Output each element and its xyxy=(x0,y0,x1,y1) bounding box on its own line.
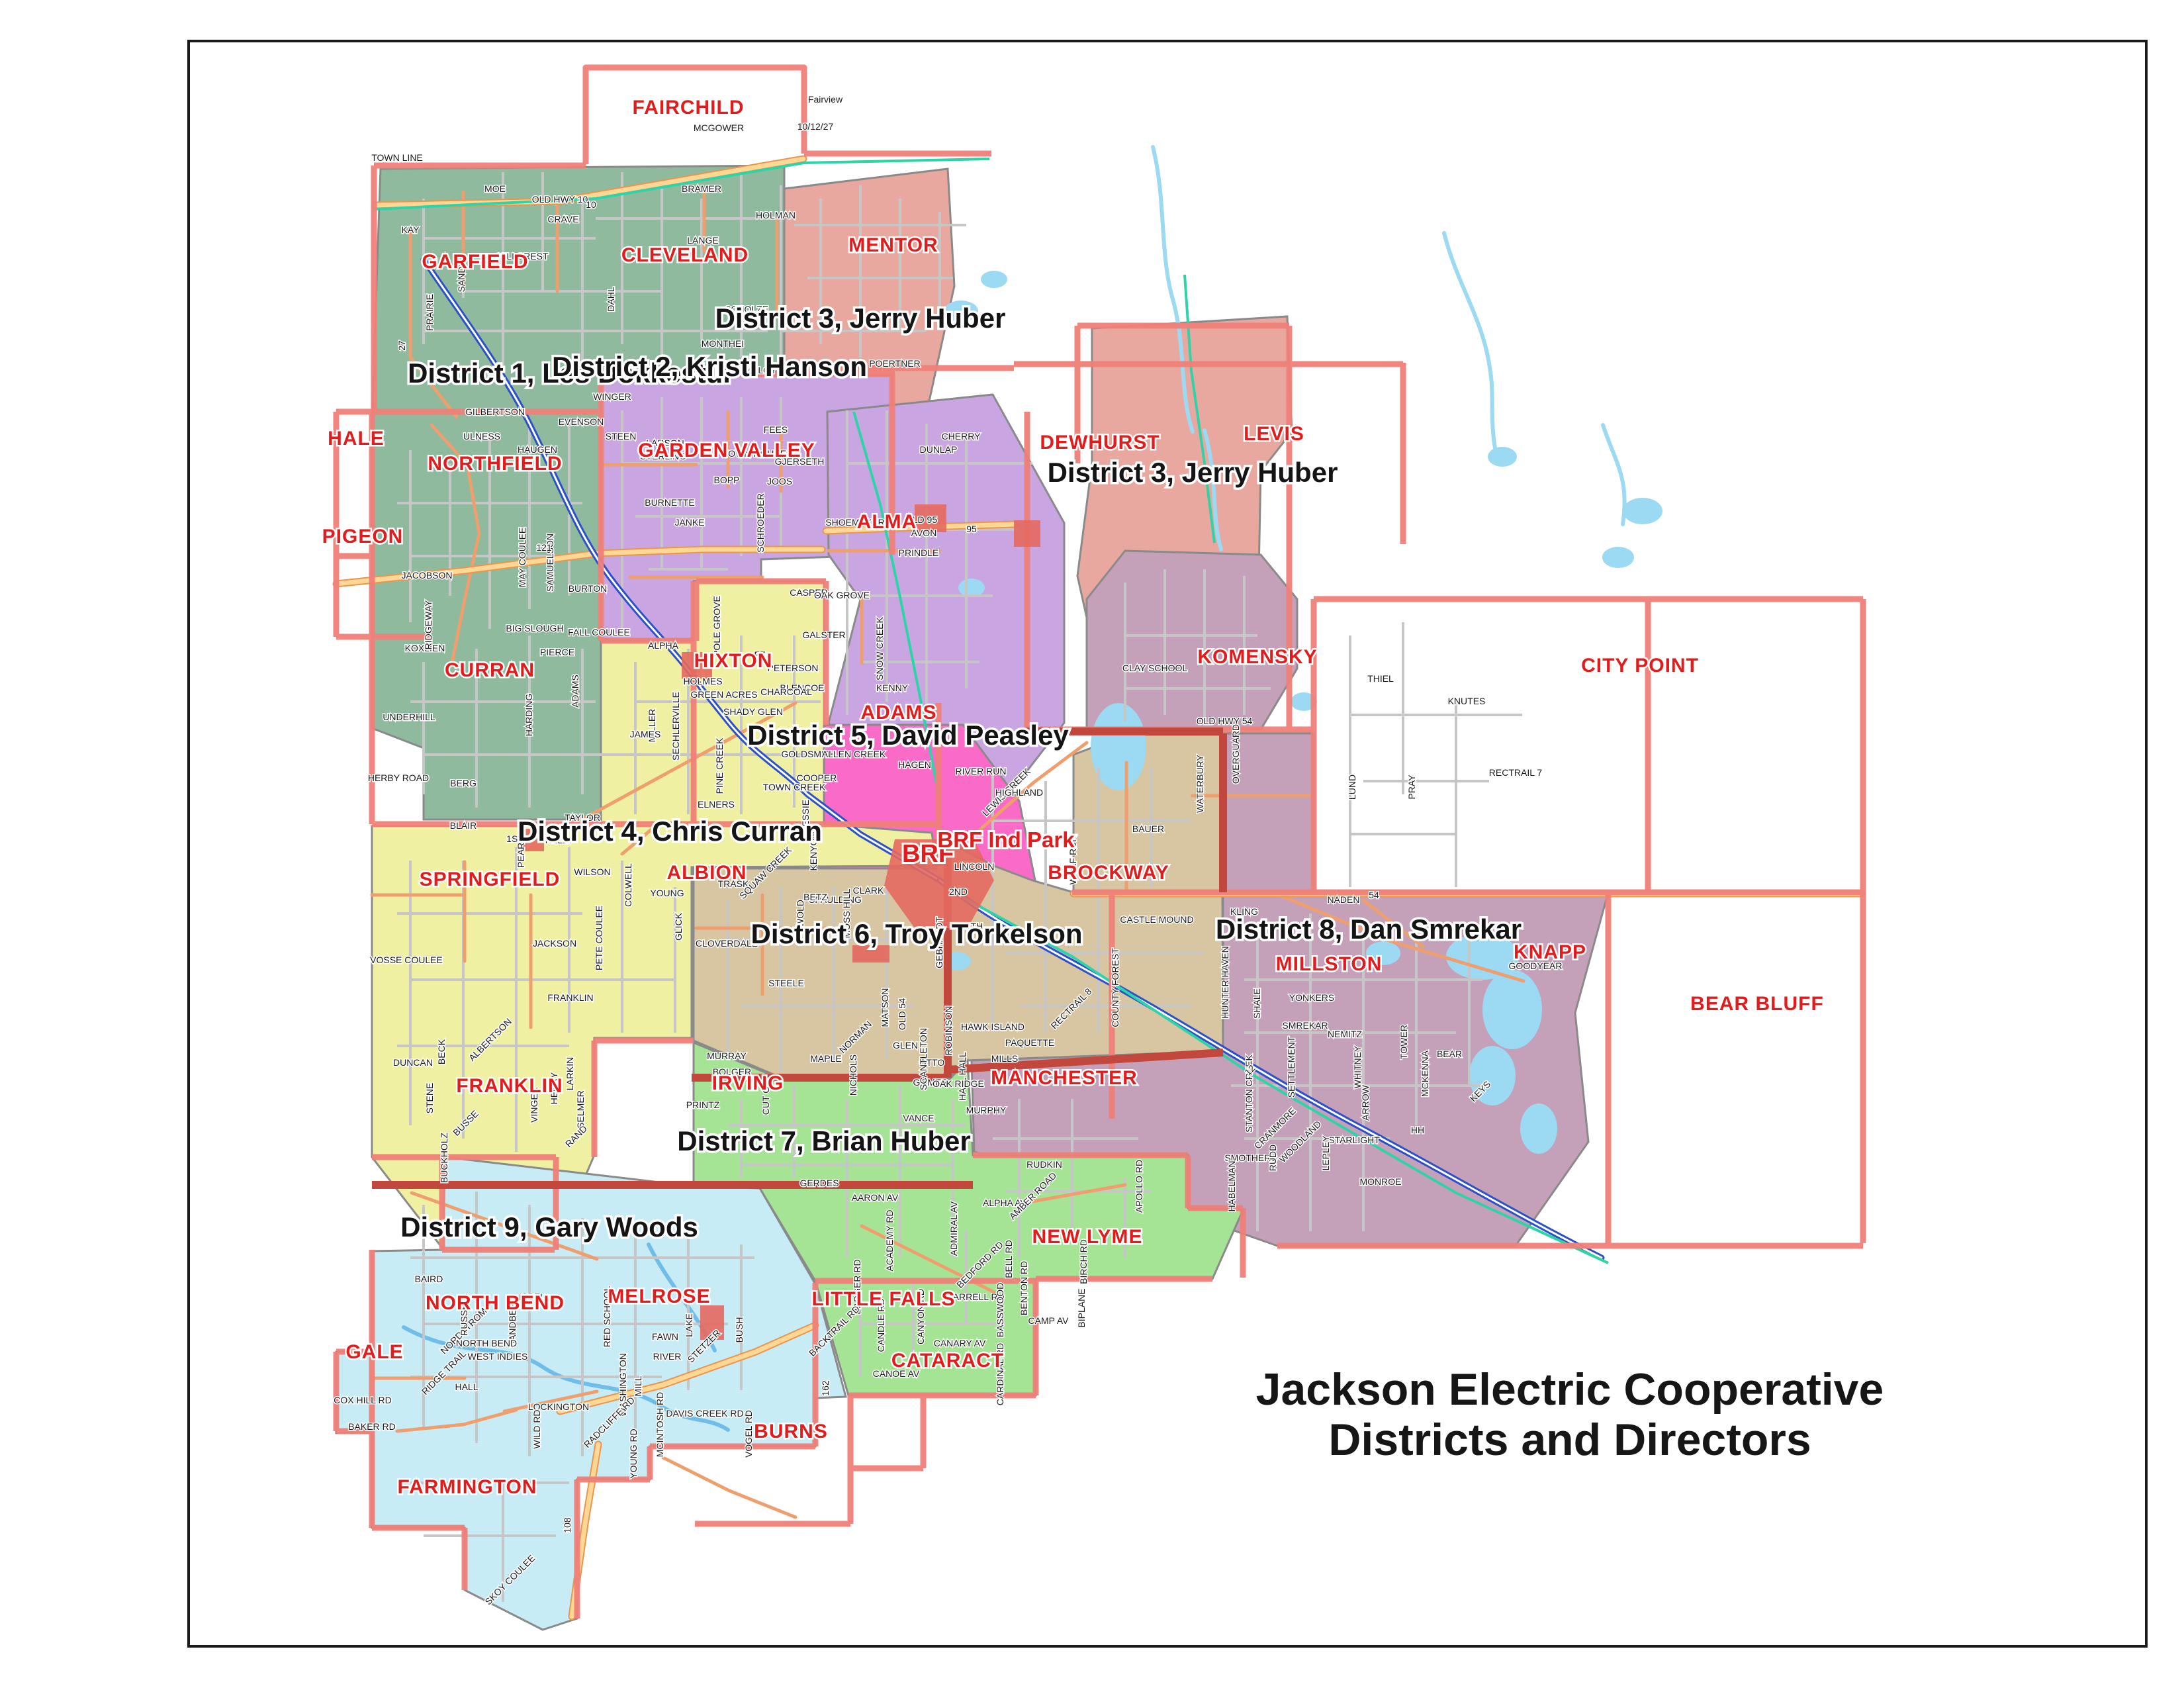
road-label: BURTON xyxy=(569,583,608,594)
township-label-pigeon: PIGEON xyxy=(322,526,404,547)
road-label: CAMP AV xyxy=(1028,1315,1069,1326)
road-label: 2ND xyxy=(949,886,968,897)
road-label: TOWER xyxy=(1398,1025,1409,1059)
road-label: RIVER RUN xyxy=(955,766,1006,776)
road-label: ARROW xyxy=(1360,1084,1371,1120)
district-label-3a: District 3, Jerry Huber xyxy=(715,303,1006,334)
township-label-manchester: MANCHESTER xyxy=(991,1067,1138,1089)
road-label: OLD 54 xyxy=(897,998,907,1030)
road-label: GREEN ACRES xyxy=(690,689,757,700)
road-label: AARON AV xyxy=(852,1192,899,1203)
district-label-4: District 4, Chris Curran xyxy=(518,816,822,847)
road-label: PRINDLE xyxy=(899,547,939,558)
township-label-albion: ALBION xyxy=(667,862,747,884)
township-label-brockway: BROCKWAY xyxy=(1048,862,1169,884)
road-label: SECHLERVILLE xyxy=(670,692,681,761)
road-label: SETTLEMENT xyxy=(1286,1036,1297,1098)
road-label: BERG xyxy=(450,778,477,788)
township-label-bear-bluff: BEAR BLUFF xyxy=(1690,993,1824,1015)
road-label: ADAMS xyxy=(570,675,580,708)
map-title-line1: Jackson Electric Cooperative xyxy=(1256,1364,1884,1415)
road-label: WATERBURY xyxy=(1195,755,1205,813)
road-label: CASTLE MOUND xyxy=(1120,914,1193,925)
road-label: ELNERS xyxy=(698,799,735,810)
township-label-city-point: CITY POINT xyxy=(1581,655,1699,677)
road-label: PETERSON xyxy=(767,663,818,673)
road-label: GALSTER xyxy=(802,630,845,640)
township-label-curran: CURRAN xyxy=(445,659,535,681)
road-label: 10/12/27 xyxy=(797,121,834,132)
road-label: POLE GROVE xyxy=(711,596,722,657)
road-label: BRAMER xyxy=(682,183,721,194)
road-label: BOPP xyxy=(714,475,740,485)
road-label: SMREKAR xyxy=(1282,1020,1328,1031)
road-label: RECTRAIL 7 xyxy=(1489,767,1543,778)
road-label: BUCKHOLZ xyxy=(439,1132,449,1183)
road-label: RIDGEWAY xyxy=(423,600,433,649)
road-label: YOUNG RD xyxy=(628,1429,639,1478)
road-label: BETZ xyxy=(803,892,827,902)
road-label: MONTHEI xyxy=(702,338,745,349)
road-label: HERBY ROAD xyxy=(368,773,429,783)
road-label: KAY xyxy=(402,224,420,235)
place-label-brf-ind-park: BRF Ind Park xyxy=(937,827,1075,852)
township-label-gale: GALE xyxy=(345,1341,403,1363)
road-label: NADEN xyxy=(1327,894,1359,905)
road-label: WILSON xyxy=(574,867,610,877)
road-label: TOWN LINE xyxy=(371,152,423,163)
road-label: BEAR xyxy=(1437,1049,1462,1059)
district-label-9: District 9, Gary Woods xyxy=(400,1211,698,1243)
road-label: DUNCAN xyxy=(393,1057,433,1068)
road-label: FAWN xyxy=(652,1331,678,1342)
road-label: CHARCOAL xyxy=(760,686,812,697)
township-label-irving: IRVING xyxy=(712,1072,784,1094)
township-label-alma: ALMA xyxy=(857,511,917,533)
map-title-line2: Districts and Directors xyxy=(1328,1415,1811,1465)
road-label: GILBERTSON xyxy=(465,406,525,417)
road-label: OAK GROVE xyxy=(814,590,870,600)
road-label: HOLMAN xyxy=(756,210,796,220)
road-label: VANCE xyxy=(903,1113,934,1123)
road-label: PRAIRIE xyxy=(424,294,435,331)
road-label: OVERGUARD xyxy=(1230,724,1241,784)
road-label: NICHOLS xyxy=(848,1055,858,1096)
township-label-little-falls: LITTLE FALLS xyxy=(812,1288,956,1310)
road-label: COOPER xyxy=(797,773,837,783)
road-label: DAHL xyxy=(606,287,616,312)
road-label: CRAVE xyxy=(547,214,578,224)
township-label-hixton: HIXTON xyxy=(694,650,773,672)
district-8-area-komensky xyxy=(1087,551,1297,729)
township-label-garfield: GARFIELD xyxy=(422,251,528,273)
road-label: STARLIGHT xyxy=(1328,1135,1380,1145)
road-label: SCHROEDER xyxy=(755,493,766,552)
road-label: CANARY AV xyxy=(934,1338,986,1348)
road-label: CLAY SCHOOL xyxy=(1122,663,1188,673)
road-label: BLAIR xyxy=(450,820,477,831)
road-label: LINCOLN xyxy=(954,861,995,872)
road-label: MAPLE xyxy=(810,1053,841,1064)
road-label: HAGEN xyxy=(898,759,931,770)
road-label: PETE COULEE xyxy=(594,906,604,970)
township-label-millston: MILLSTON xyxy=(1276,953,1383,975)
road-label: YONKERS xyxy=(1289,992,1334,1003)
road-label: GERDES xyxy=(799,1178,839,1188)
road-label: FEES xyxy=(764,424,788,435)
road-label: JACKSON xyxy=(533,938,576,949)
road-label: VOGEL RD xyxy=(743,1410,754,1458)
road-label: LEPLEY xyxy=(1320,1135,1331,1171)
road-label: ALPHA xyxy=(648,640,679,651)
road-label: SHALE xyxy=(1251,988,1262,1019)
road-label: RUDKIN xyxy=(1026,1159,1062,1170)
map-page: TOWN LINE OLD HWY 10 MCGOWER 10/12/27 BR… xyxy=(0,0,2184,1688)
district-label-8: District 8, Dan Smrekar xyxy=(1216,914,1522,945)
road-label: SCANTLETON xyxy=(918,1028,929,1090)
road-label: SHADY GLEN xyxy=(723,706,783,717)
road-label: LUND xyxy=(1347,774,1357,800)
road-label: POERTNER xyxy=(869,358,921,369)
township-label-hale: HALE xyxy=(328,428,385,449)
township-label-cataract: CATARACT xyxy=(891,1350,1004,1372)
road-label: MURPHY xyxy=(966,1105,1007,1115)
township-label-northfield: NORTHFIELD xyxy=(428,453,562,475)
road-label: DUNLAP xyxy=(920,444,958,455)
road-label: COUNTY FOREST xyxy=(1110,948,1120,1027)
township-label-fairchild: FAIRCHILD xyxy=(633,97,745,118)
road-label: FALL COULEE xyxy=(568,627,630,637)
route-number: 54 xyxy=(1369,890,1379,900)
road-label: HIGHLAND xyxy=(995,787,1043,798)
map-title: Jackson Electric Cooperative Districts a… xyxy=(1256,1364,1884,1465)
township-label-springfield: SPRINGFIELD xyxy=(420,868,561,890)
road-label: BELL RD xyxy=(1003,1240,1014,1278)
road-label: JOOS xyxy=(767,476,792,487)
township-label-komensky: KOMENSKY xyxy=(1197,646,1317,668)
road-label: PAQUETTE xyxy=(1005,1037,1054,1048)
township-label-cleveland: CLEVELAND xyxy=(621,244,749,266)
road-label: GLEN xyxy=(893,1040,918,1051)
road-label: NORTH BEND xyxy=(456,1338,517,1348)
township-label-melrose: MELROSE xyxy=(608,1286,710,1307)
place-label-fairview: Fairview xyxy=(808,94,843,105)
township-label-knapp: KNAPP xyxy=(1514,941,1586,963)
road-label: WINGER xyxy=(593,391,631,402)
road-label: MOE xyxy=(484,183,506,194)
township-label-franklin: FRANKLIN xyxy=(456,1075,563,1097)
road-label: CHERRY xyxy=(942,431,981,442)
road-label: LAKE xyxy=(684,1313,694,1337)
district-label-3b: District 3, Jerry Huber xyxy=(1048,457,1338,488)
road-label: FRANKLIN xyxy=(547,992,593,1003)
route-number: 108 xyxy=(562,1517,572,1533)
road-label: WEST INDIES xyxy=(468,1351,528,1362)
township-label-mentor: MENTOR xyxy=(848,234,938,256)
road-label: STEELE xyxy=(768,978,804,988)
road-label: SELMER xyxy=(575,1090,586,1129)
road-label: ACADEMY RD xyxy=(884,1209,895,1271)
road-label: PRINTZ xyxy=(686,1100,720,1110)
road-label: MCINTOSH RD xyxy=(655,1392,665,1458)
road-label: MCGOWER xyxy=(694,122,744,133)
route-number: 162 xyxy=(820,1380,831,1396)
road-label: HH xyxy=(1411,1125,1424,1135)
road-label: UNDERHILL xyxy=(383,712,435,722)
districts-map: TOWN LINE OLD HWY 10 MCGOWER 10/12/27 BR… xyxy=(0,0,2184,1688)
road-label: RIVER xyxy=(653,1351,682,1362)
township-label-new-lyme: NEW LYME xyxy=(1032,1226,1143,1248)
road-label: BAUER xyxy=(1132,823,1164,834)
road-label: BAKER RD xyxy=(348,1421,396,1432)
road-label: EVENSON xyxy=(559,416,604,427)
road-label: BIG SLOUGH xyxy=(506,623,563,633)
road-label: HALL xyxy=(455,1382,478,1392)
road-label: STENE xyxy=(424,1083,435,1114)
road-label: JANKE xyxy=(674,517,704,528)
road-label: HAWK ISLAND xyxy=(961,1021,1024,1032)
road-label: MAY COULEE xyxy=(517,528,527,588)
road-label: CLARK xyxy=(853,885,884,896)
road-label: OLD HWY 54 xyxy=(1197,716,1253,726)
road-label: KNUTES xyxy=(1448,696,1486,706)
road-label: HOLMES xyxy=(683,676,722,686)
road-label: PIERCE xyxy=(540,647,574,657)
township-label-farmington: FARMINGTON xyxy=(397,1476,537,1498)
township-label-north-bend: NORTH BEND xyxy=(426,1292,565,1314)
road-label: TOWN CREEK xyxy=(763,782,826,792)
road-label: PRAY xyxy=(1406,774,1417,800)
road-label: BUSH xyxy=(734,1317,745,1343)
route-number: 10 xyxy=(586,199,596,210)
road-label: BASSWOOD xyxy=(995,1283,1005,1337)
road-label: HABELMAN xyxy=(1226,1160,1237,1211)
route-number: 95 xyxy=(966,524,977,534)
road-label: HUNTER HAVEN xyxy=(1220,946,1230,1018)
road-label: HARDING xyxy=(523,694,534,737)
road-label: OLD HWY 10 xyxy=(532,194,588,205)
road-label: COLWELL xyxy=(623,863,633,907)
road-label: PINE CREEK xyxy=(714,737,725,794)
district-label-2: District 2, Kristi Hanson xyxy=(552,351,867,382)
road-label: MILLS xyxy=(991,1053,1018,1064)
road-label: MONROE xyxy=(1360,1176,1402,1187)
road-label: JACOBSON xyxy=(401,570,452,581)
road-label: ULNESS xyxy=(463,431,500,442)
road-label: STEEN xyxy=(606,431,637,442)
township-label-burns: BURNS xyxy=(754,1421,828,1442)
route-number: 121 xyxy=(536,542,552,553)
district-label-6: District 6, Troy Torkelson xyxy=(751,918,1082,949)
road-label: SNOW CREEK xyxy=(874,617,885,680)
road-label: DAVIS CREEK RD xyxy=(666,1408,743,1419)
road-label: BENTON RD xyxy=(1019,1261,1029,1315)
district-label-5: District 5, David Peasley xyxy=(747,720,1069,751)
road-label: LARKIN xyxy=(565,1057,575,1091)
road-label: JAMES xyxy=(630,729,661,739)
road-label: NEMITZ xyxy=(1328,1029,1363,1039)
road-label: APOLLO RD xyxy=(1134,1160,1144,1213)
road-label: KENNY xyxy=(876,682,909,693)
road-label: MCKENNA xyxy=(1420,1050,1430,1097)
road-label: ADMIRAL AV xyxy=(948,1201,959,1256)
road-label: HALL HALL xyxy=(957,1052,968,1101)
district-label-7: District 7, Brian Huber xyxy=(677,1125,970,1156)
road-label: WILD RD xyxy=(531,1409,542,1448)
road-label: THIEL xyxy=(1367,673,1394,684)
township-label-dewhurst: DEWHURST xyxy=(1040,432,1160,453)
road-label: COX HILL RD xyxy=(334,1395,391,1405)
road-label: BURNETTE xyxy=(645,497,694,508)
road-label: BECK xyxy=(436,1039,447,1064)
road-label: WHITNEY xyxy=(1352,1045,1363,1088)
road-label: YOUNG xyxy=(650,888,684,898)
township-label-levis: LEVIS xyxy=(1244,423,1304,445)
road-label: MILL xyxy=(633,1376,643,1396)
road-label: MURRAY xyxy=(707,1051,747,1061)
route-number: 27 xyxy=(396,340,407,351)
road-label: VOSSE COULEE xyxy=(370,955,443,965)
road-label: BIPLANE xyxy=(1076,1288,1087,1327)
road-label: OAK RIDGE xyxy=(933,1078,984,1089)
road-label: CLOVERDALE xyxy=(696,938,758,949)
road-label: ROBINSON xyxy=(943,1006,954,1056)
road-label: RUDD xyxy=(1267,1145,1278,1171)
township-label-garden-valley: GARDEN VALLEY xyxy=(638,440,815,461)
road-label: MATSON xyxy=(880,988,890,1027)
road-label: BAIRD xyxy=(415,1274,443,1284)
road-label: GLICK xyxy=(673,912,684,941)
